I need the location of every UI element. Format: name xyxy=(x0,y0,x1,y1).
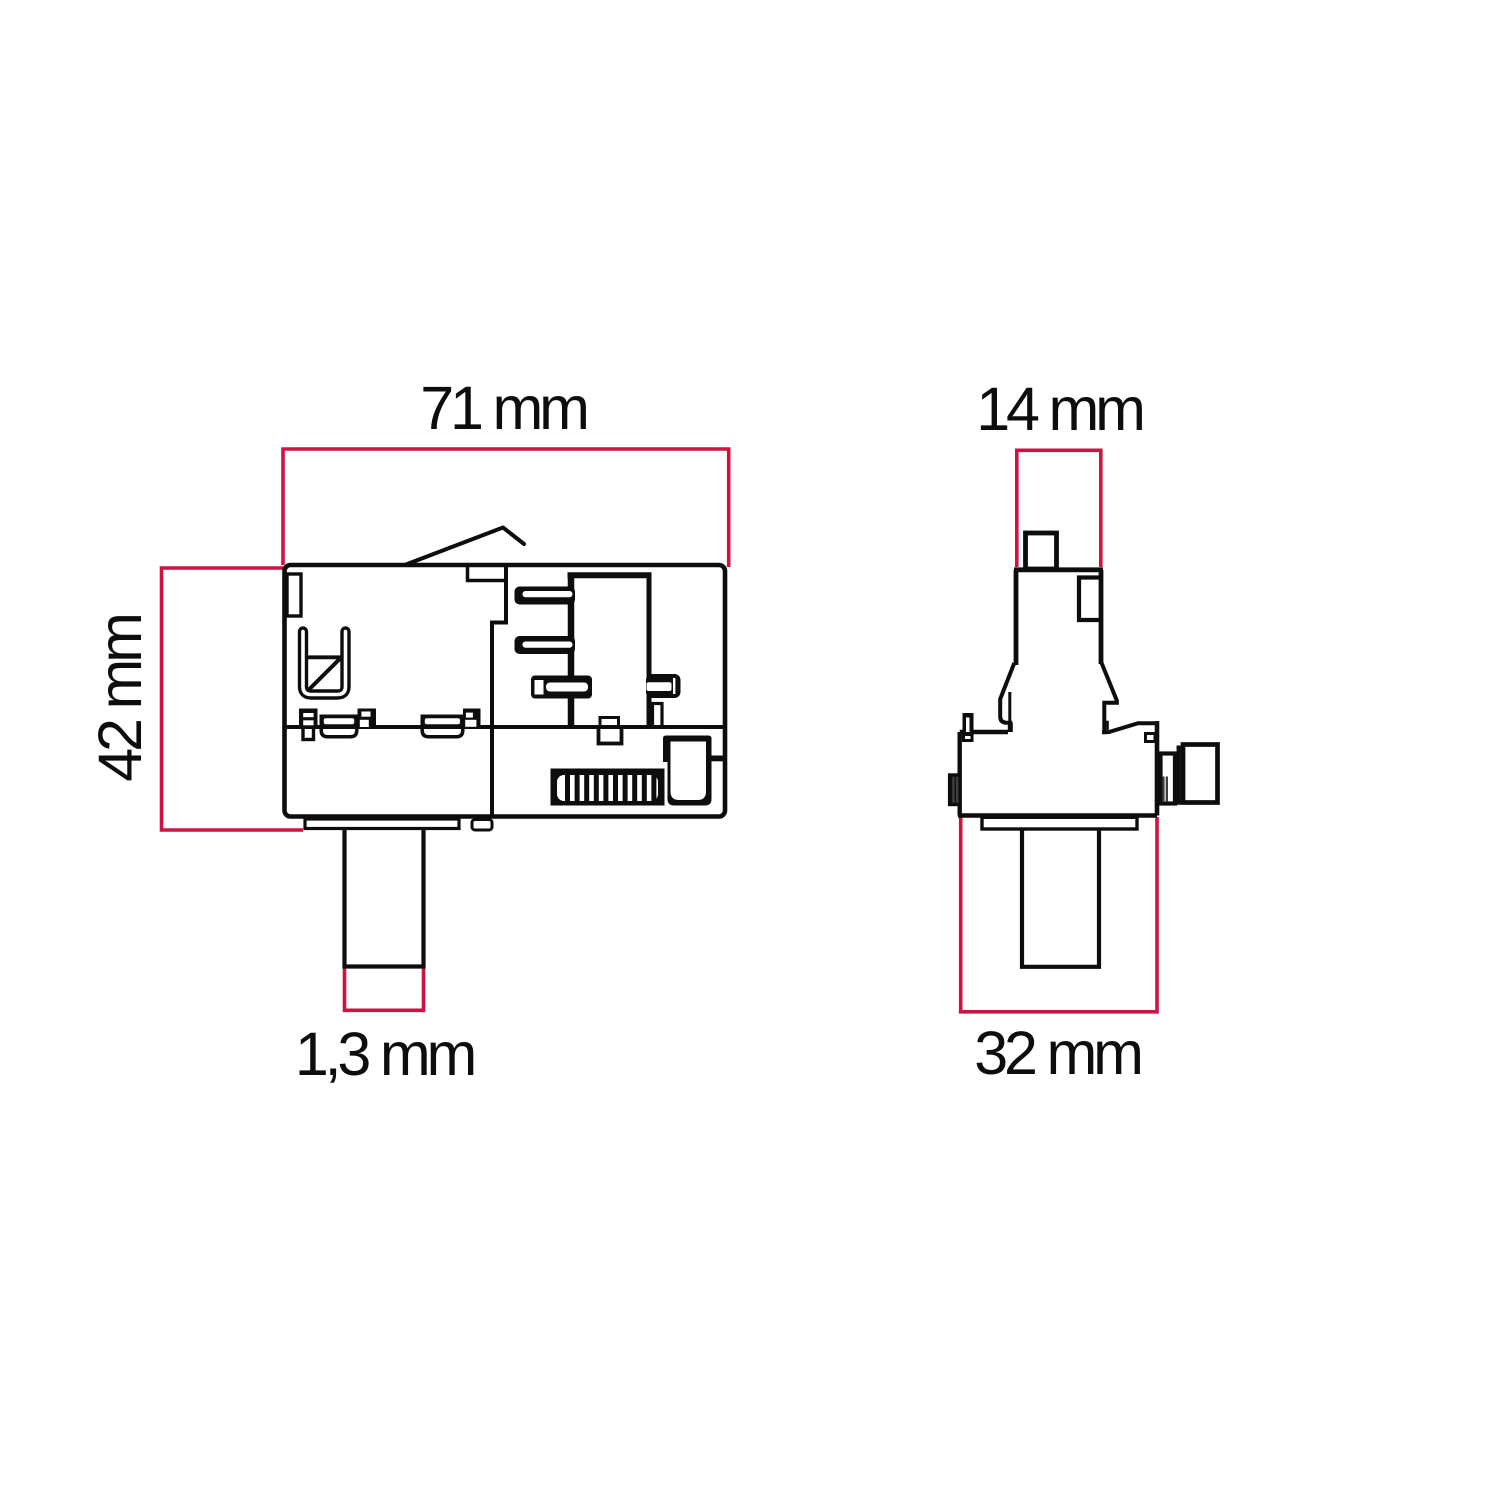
svg-text:14 mm: 14 mm xyxy=(976,375,1142,443)
svg-text:71 mm: 71 mm xyxy=(420,374,586,442)
svg-text:1,3 mm: 1,3 mm xyxy=(295,1020,474,1088)
svg-text:32 mm: 32 mm xyxy=(974,1019,1140,1087)
svg-text:42 mm: 42 mm xyxy=(86,616,154,782)
